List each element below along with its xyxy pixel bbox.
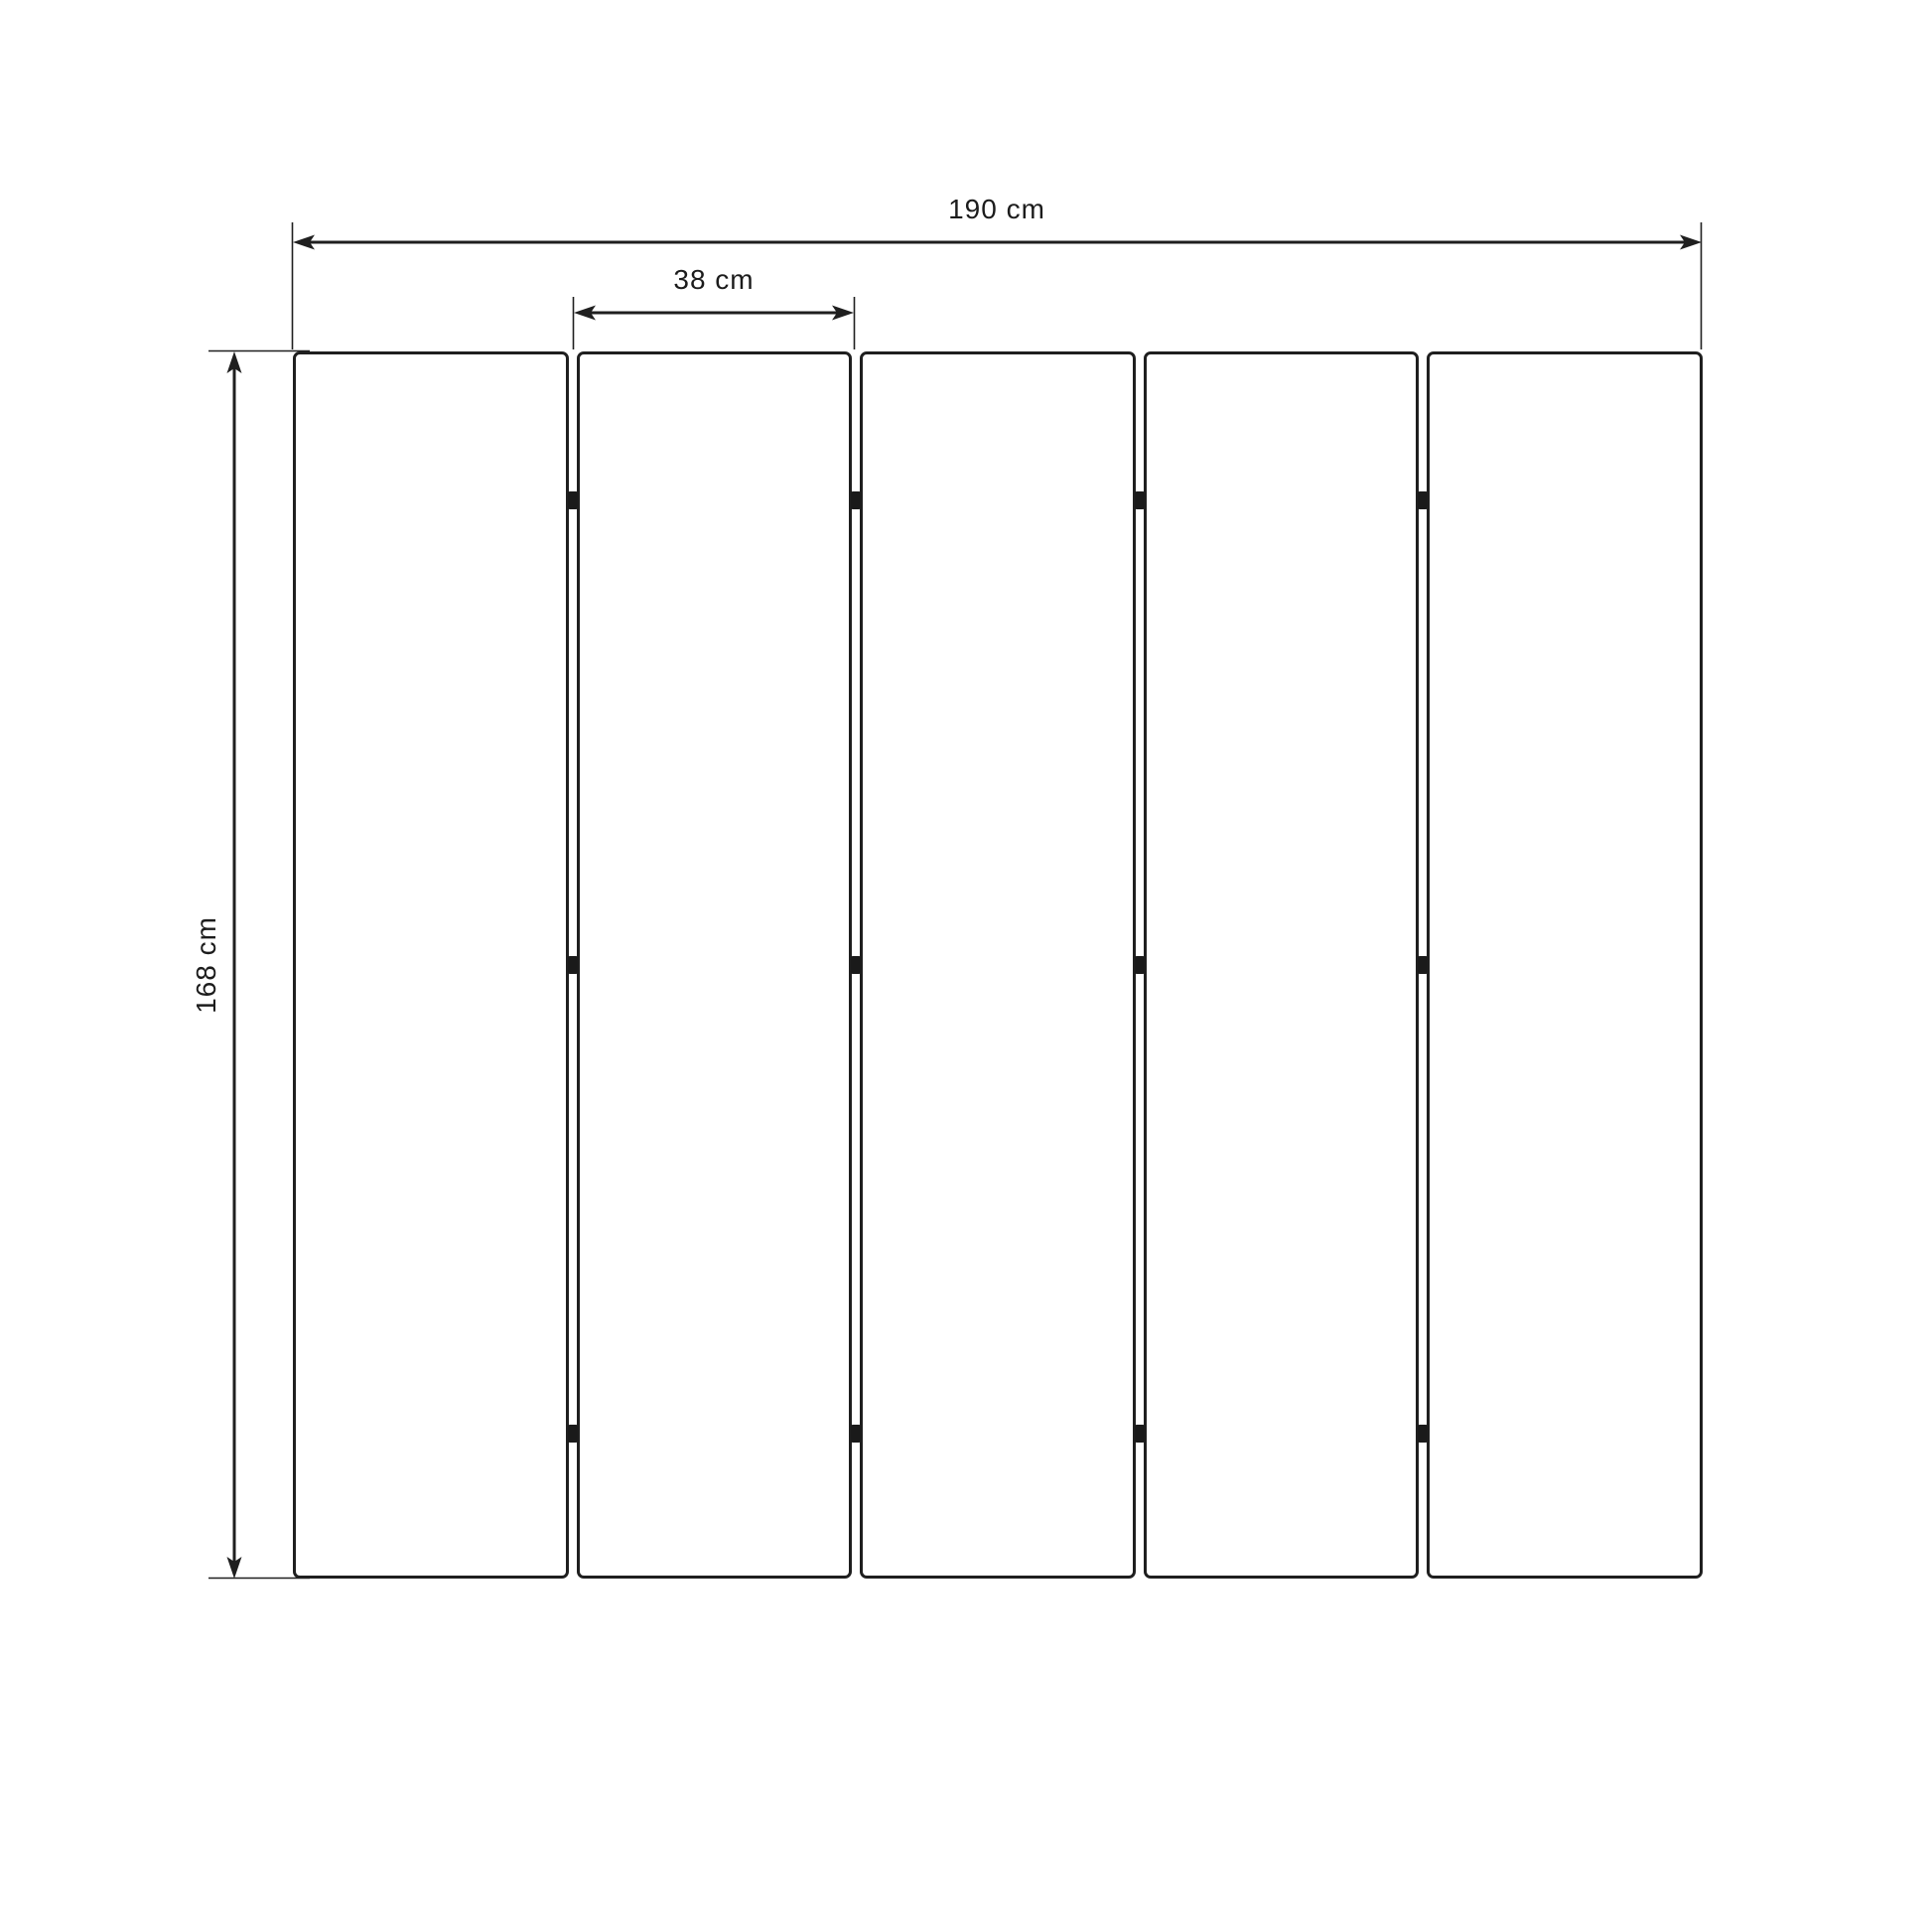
dimension-diagram: 190 cm 38 cm 168 cm <box>0 0 1932 1932</box>
panel-3 <box>860 351 1136 1579</box>
hinge <box>568 491 578 509</box>
hinge <box>851 491 861 509</box>
hinge <box>1418 1425 1428 1443</box>
hinge <box>851 956 861 974</box>
panel-4 <box>1144 351 1420 1579</box>
hinge <box>1135 491 1145 509</box>
hinge <box>1418 956 1428 974</box>
hinge <box>1135 1425 1145 1443</box>
total-width-label: 190 cm <box>948 193 1045 226</box>
panel-width-label: 38 cm <box>673 263 754 297</box>
hinge <box>1418 491 1428 509</box>
panel-1 <box>293 351 569 1579</box>
height-label: 168 cm <box>190 916 223 1014</box>
hinge <box>568 1425 578 1443</box>
hinge <box>1135 956 1145 974</box>
panel-row <box>293 351 1703 1579</box>
hinge <box>851 1425 861 1443</box>
panel-5 <box>1427 351 1703 1579</box>
hinge <box>568 956 578 974</box>
panel-2 <box>577 351 853 1579</box>
